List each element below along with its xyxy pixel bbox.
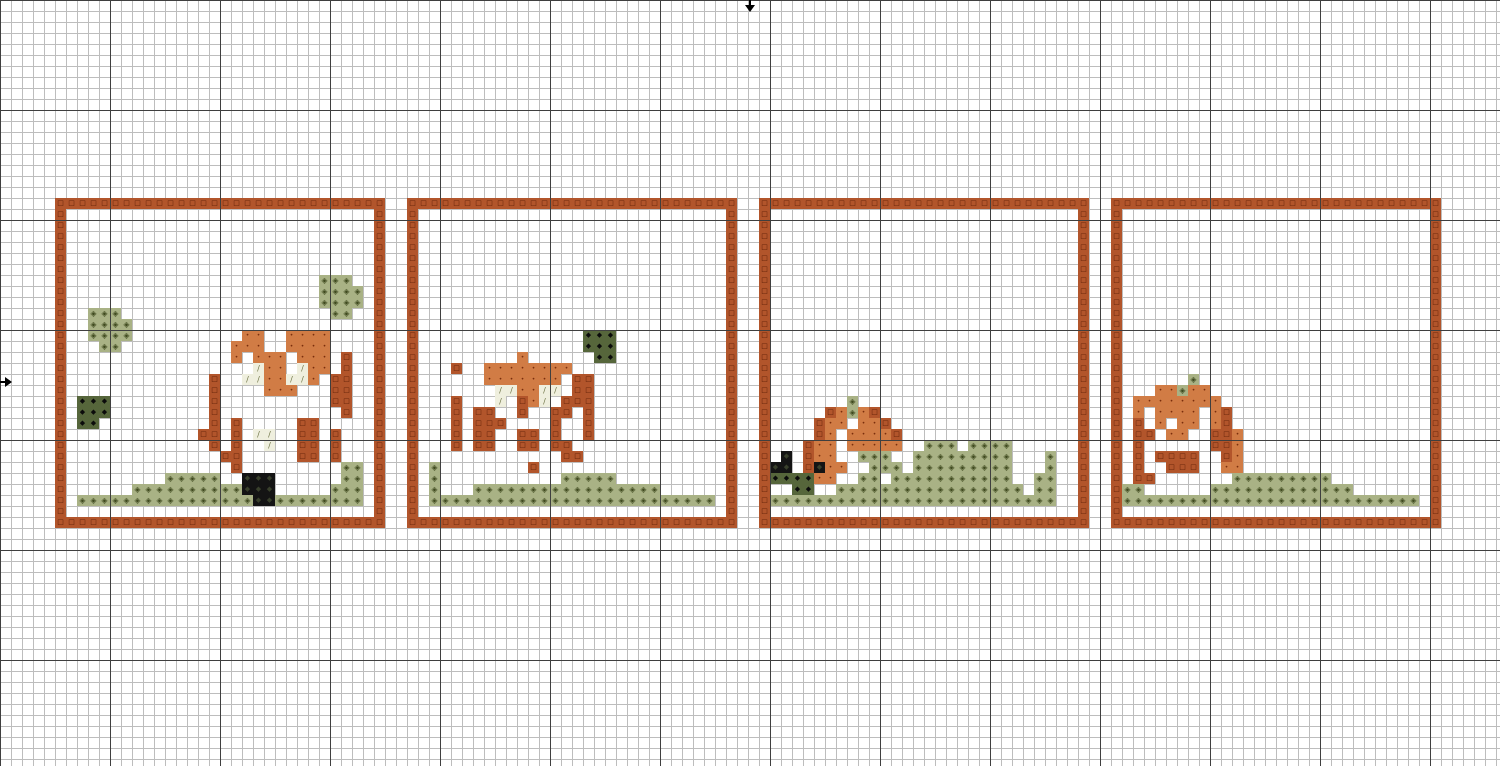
stitch-cell[interactable]: □ <box>374 440 385 451</box>
stitch-cell[interactable]: □ <box>1353 198 1364 209</box>
stitch-cell[interactable]: □ <box>1430 198 1441 209</box>
stitch-cell[interactable]: □ <box>1078 385 1089 396</box>
stitch-cell[interactable]: ◈ <box>1342 495 1353 506</box>
stitch-cell[interactable]: ◈ <box>429 495 440 506</box>
stitch-cell[interactable]: □ <box>484 198 495 209</box>
stitch-cell[interactable]: □ <box>759 429 770 440</box>
stitch-cell[interactable]: □ <box>726 264 737 275</box>
stitch-cell[interactable]: □ <box>1111 330 1122 341</box>
stitch-cell[interactable]: □ <box>330 198 341 209</box>
stitch-cell[interactable]: □ <box>1430 253 1441 264</box>
stitch-cell[interactable]: □ <box>473 440 484 451</box>
stitch-cell[interactable]: □ <box>1397 517 1408 528</box>
stitch-cell[interactable]: ◈ <box>330 275 341 286</box>
stitch-cell[interactable]: □ <box>308 418 319 429</box>
stitch-cell[interactable]: □ <box>55 462 66 473</box>
stitch-cell[interactable]: □ <box>88 517 99 528</box>
stitch-cell[interactable]: □ <box>220 517 231 528</box>
stitch-cell[interactable]: ◈ <box>979 484 990 495</box>
stitch-cell[interactable]: ◈ <box>88 319 99 330</box>
stitch-cell[interactable]: ◈ <box>517 495 528 506</box>
stitch-cell[interactable]: ◈ <box>858 451 869 462</box>
stitch-cell[interactable]: □ <box>759 396 770 407</box>
stitch-cell[interactable]: □ <box>1221 198 1232 209</box>
stitch-cell[interactable]: □ <box>1177 462 1188 473</box>
stitch-cell[interactable]: □ <box>341 198 352 209</box>
stitch-cell[interactable]: □ <box>308 517 319 528</box>
stitch-cell[interactable]: ◈ <box>1254 484 1265 495</box>
stitch-cell[interactable]: □ <box>979 198 990 209</box>
stitch-cell[interactable]: □ <box>1375 517 1386 528</box>
stitch-cell[interactable]: • <box>561 363 572 374</box>
stitch-cell[interactable]: ◆ <box>77 407 88 418</box>
stitch-cell[interactable]: □ <box>792 198 803 209</box>
stitch-cell[interactable]: □ <box>407 495 418 506</box>
stitch-cell[interactable]: ◈ <box>429 462 440 473</box>
stitch-cell[interactable]: ◈ <box>572 473 583 484</box>
stitch-cell[interactable]: □ <box>1298 517 1309 528</box>
stitch-cell[interactable]: • <box>539 374 550 385</box>
stitch-cell[interactable]: □ <box>759 264 770 275</box>
stitch-cell[interactable]: • <box>1166 396 1177 407</box>
stitch-cell[interactable]: • <box>517 374 528 385</box>
stitch-cell[interactable]: □ <box>1078 429 1089 440</box>
stitch-cell[interactable]: □ <box>330 396 341 407</box>
stitch-cell[interactable]: □ <box>1078 352 1089 363</box>
stitch-cell[interactable]: □ <box>781 517 792 528</box>
stitch-cell[interactable]: ◈ <box>924 462 935 473</box>
stitch-cell[interactable]: □ <box>1078 374 1089 385</box>
stitch-cell[interactable]: ◈ <box>330 484 341 495</box>
stitch-cell[interactable]: □ <box>77 198 88 209</box>
stitch-cell[interactable]: ◈ <box>990 462 1001 473</box>
stitch-cell[interactable]: □ <box>759 297 770 308</box>
stitch-cell[interactable]: □ <box>484 429 495 440</box>
stitch-cell[interactable]: □ <box>165 517 176 528</box>
stitch-cell[interactable]: □ <box>605 517 616 528</box>
stitch-cell[interactable]: ◈ <box>1177 495 1188 506</box>
stitch-cell[interactable]: □ <box>55 429 66 440</box>
stitch-cell[interactable]: □ <box>1111 352 1122 363</box>
stitch-cell[interactable]: ◈ <box>517 484 528 495</box>
stitch-cell[interactable]: ◈ <box>99 330 110 341</box>
stitch-cell[interactable]: □ <box>374 484 385 495</box>
stitch-cell[interactable]: ◈ <box>1144 495 1155 506</box>
stitch-cell[interactable]: ◈ <box>165 484 176 495</box>
stitch-cell[interactable]: □ <box>759 286 770 297</box>
stitch-cell[interactable]: ◈ <box>682 495 693 506</box>
stitch-cell[interactable]: ◈ <box>495 484 506 495</box>
stitch-cell[interactable]: □ <box>407 231 418 242</box>
stitch-cell[interactable]: □ <box>330 517 341 528</box>
stitch-cell[interactable]: □ <box>528 429 539 440</box>
stitch-cell[interactable]: □ <box>55 275 66 286</box>
stitch-cell[interactable]: □ <box>583 396 594 407</box>
stitch-cell[interactable]: □ <box>726 484 737 495</box>
stitch-cell[interactable]: □ <box>528 440 539 451</box>
stitch-cell[interactable]: • <box>297 330 308 341</box>
stitch-cell[interactable]: ◆ <box>253 484 264 495</box>
stitch-cell[interactable]: □ <box>1144 429 1155 440</box>
stitch-cell[interactable]: □ <box>759 231 770 242</box>
stitch-cell[interactable]: □ <box>550 418 561 429</box>
stitch-cell[interactable]: • <box>286 385 297 396</box>
stitch-cell[interactable]: ◈ <box>352 484 363 495</box>
stitch-cell[interactable]: □ <box>517 198 528 209</box>
stitch-cell[interactable]: ◈ <box>1199 495 1210 506</box>
stitch-cell[interactable]: □ <box>1430 484 1441 495</box>
stitch-cell[interactable]: • <box>242 330 253 341</box>
stitch-cell[interactable]: ◈ <box>869 462 880 473</box>
stitch-cell[interactable]: □ <box>407 297 418 308</box>
stitch-cell[interactable]: □ <box>55 517 66 528</box>
stitch-cell[interactable]: □ <box>374 220 385 231</box>
stitch-cell[interactable]: □ <box>583 429 594 440</box>
stitch-cell[interactable]: • <box>858 440 869 451</box>
stitch-cell[interactable]: ◈ <box>550 484 561 495</box>
stitch-cell[interactable]: □ <box>407 429 418 440</box>
stitch-cell[interactable]: • <box>550 363 561 374</box>
stitch-cell[interactable]: □ <box>902 517 913 528</box>
stitch-cell[interactable]: ◆ <box>99 407 110 418</box>
stitch-cell[interactable]: □ <box>1144 517 1155 528</box>
stitch-cell[interactable]: □ <box>968 198 979 209</box>
stitch-cell[interactable]: □ <box>451 429 462 440</box>
stitch-cell[interactable]: • <box>1188 418 1199 429</box>
stitch-cell[interactable]: □ <box>913 517 924 528</box>
stitch-cell[interactable]: □ <box>528 198 539 209</box>
stitch-cell[interactable]: ◈ <box>946 462 957 473</box>
stitch-cell[interactable]: ◆ <box>99 396 110 407</box>
stitch-cell[interactable]: • <box>297 352 308 363</box>
stitch-cell[interactable]: □ <box>407 462 418 473</box>
stitch-cell[interactable]: • <box>528 374 539 385</box>
stitch-cell[interactable]: • <box>1155 407 1166 418</box>
stitch-cell[interactable]: □ <box>308 440 319 451</box>
stitch-cell[interactable]: □ <box>1430 451 1441 462</box>
stitch-cell[interactable]: □ <box>1430 264 1441 275</box>
stitch-cell[interactable]: ◈ <box>1045 451 1056 462</box>
stitch-cell[interactable]: ◈ <box>1309 484 1320 495</box>
stitch-cell[interactable]: ◈ <box>1034 495 1045 506</box>
stitch-cell[interactable]: • <box>869 418 880 429</box>
stitch-cell[interactable]: □ <box>1111 517 1122 528</box>
stitch-cell[interactable]: □ <box>209 517 220 528</box>
stitch-cell[interactable]: ◈ <box>1298 473 1309 484</box>
stitch-cell[interactable]: □ <box>1243 198 1254 209</box>
stitch-cell[interactable]: □ <box>1078 341 1089 352</box>
stitch-cell[interactable]: ◈ <box>583 473 594 484</box>
stitch-cell[interactable]: □ <box>759 341 770 352</box>
stitch-cell[interactable]: □ <box>1111 341 1122 352</box>
stitch-cell[interactable]: □ <box>308 198 319 209</box>
stitch-cell[interactable]: □ <box>1078 253 1089 264</box>
stitch-cell[interactable]: □ <box>407 440 418 451</box>
stitch-cell[interactable]: ◈ <box>1364 495 1375 506</box>
stitch-cell[interactable]: ◈ <box>330 286 341 297</box>
stitch-cell[interactable]: ◈ <box>154 484 165 495</box>
stitch-cell[interactable]: ◈ <box>121 319 132 330</box>
stitch-cell[interactable]: □ <box>55 396 66 407</box>
stitch-cell[interactable]: □ <box>1111 451 1122 462</box>
stitch-cell[interactable]: □ <box>374 517 385 528</box>
stitch-cell[interactable]: □ <box>1155 198 1166 209</box>
stitch-cell[interactable]: ◈ <box>594 495 605 506</box>
stitch-cell[interactable]: □ <box>1133 473 1144 484</box>
stitch-cell[interactable]: □ <box>1177 198 1188 209</box>
stitch-cell[interactable]: ◈ <box>627 495 638 506</box>
stitch-cell[interactable]: ◈ <box>1397 495 1408 506</box>
stitch-cell[interactable]: ◈ <box>913 462 924 473</box>
stitch-cell[interactable]: ◈ <box>1166 495 1177 506</box>
stitch-cell[interactable]: □ <box>1309 517 1320 528</box>
stitch-cell[interactable]: • <box>825 429 836 440</box>
stitch-cell[interactable]: □ <box>407 253 418 264</box>
stitch-cell[interactable]: □ <box>1133 440 1144 451</box>
stitch-cell[interactable]: □ <box>297 429 308 440</box>
stitch-cell[interactable]: □ <box>154 198 165 209</box>
stitch-cell[interactable]: □ <box>1111 253 1122 264</box>
stitch-cell[interactable]: □ <box>88 198 99 209</box>
stitch-cell[interactable]: □ <box>374 198 385 209</box>
stitch-cell[interactable]: □ <box>957 198 968 209</box>
stitch-cell[interactable]: □ <box>1221 440 1232 451</box>
stitch-cell[interactable]: ◈ <box>825 495 836 506</box>
stitch-cell[interactable]: ◈ <box>528 484 539 495</box>
stitch-cell[interactable]: □ <box>1078 495 1089 506</box>
stitch-cell[interactable]: • <box>297 341 308 352</box>
stitch-cell[interactable]: ◈ <box>176 495 187 506</box>
stitch-cell[interactable]: □ <box>55 506 66 517</box>
stitch-cell[interactable]: ◈ <box>847 396 858 407</box>
stitch-cell[interactable]: ◈ <box>891 473 902 484</box>
stitch-cell[interactable]: □ <box>1111 440 1122 451</box>
stitch-cell[interactable]: ◈ <box>330 495 341 506</box>
stitch-cell[interactable]: ◆ <box>583 330 594 341</box>
stitch-cell[interactable]: □ <box>759 275 770 286</box>
stitch-cell[interactable]: □ <box>55 484 66 495</box>
stitch-cell[interactable]: □ <box>352 198 363 209</box>
stitch-cell[interactable]: • <box>1166 429 1177 440</box>
stitch-cell[interactable]: ◈ <box>352 297 363 308</box>
stitch-cell[interactable]: ◈ <box>561 495 572 506</box>
stitch-cell[interactable]: □ <box>363 198 374 209</box>
stitch-cell[interactable]: □ <box>143 517 154 528</box>
stitch-cell[interactable]: □ <box>374 462 385 473</box>
stitch-cell[interactable]: ◈ <box>913 495 924 506</box>
stitch-cell[interactable]: ◈ <box>880 495 891 506</box>
stitch-cell[interactable]: ◈ <box>1188 374 1199 385</box>
stitch-cell[interactable]: • <box>858 429 869 440</box>
stitch-cell[interactable]: □ <box>374 506 385 517</box>
stitch-cell[interactable]: □ <box>297 418 308 429</box>
stitch-cell[interactable]: □ <box>66 198 77 209</box>
stitch-cell[interactable]: □ <box>55 363 66 374</box>
stitch-cell[interactable]: ◈ <box>429 473 440 484</box>
stitch-cell[interactable]: ◈ <box>506 495 517 506</box>
stitch-cell[interactable]: □ <box>550 198 561 209</box>
stitch-cell[interactable]: □ <box>55 209 66 220</box>
stitch-cell[interactable]: • <box>1133 407 1144 418</box>
stitch-cell[interactable]: / <box>264 429 275 440</box>
stitch-cell[interactable]: □ <box>1056 198 1067 209</box>
stitch-cell[interactable]: □ <box>1430 330 1441 341</box>
stitch-cell[interactable]: • <box>880 429 891 440</box>
stitch-cell[interactable]: ◈ <box>319 297 330 308</box>
stitch-cell[interactable]: ◈ <box>451 495 462 506</box>
stitch-cell[interactable]: □ <box>407 220 418 231</box>
stitch-cell[interactable]: ◈ <box>110 341 121 352</box>
stitch-cell[interactable]: □ <box>726 330 737 341</box>
stitch-cell[interactable]: □ <box>55 220 66 231</box>
stitch-cell[interactable]: □ <box>55 385 66 396</box>
stitch-cell[interactable]: □ <box>1023 517 1034 528</box>
stitch-cell[interactable]: □ <box>484 407 495 418</box>
stitch-cell[interactable]: ◈ <box>847 484 858 495</box>
stitch-cell[interactable]: • <box>869 429 880 440</box>
stitch-cell[interactable]: □ <box>913 198 924 209</box>
stitch-cell[interactable]: • <box>836 407 847 418</box>
stitch-cell[interactable]: ◈ <box>594 473 605 484</box>
stitch-cell[interactable]: • <box>858 407 869 418</box>
stitch-cell[interactable]: □ <box>759 517 770 528</box>
stitch-cell[interactable]: • <box>517 363 528 374</box>
stitch-cell[interactable]: □ <box>726 253 737 264</box>
stitch-cell[interactable]: □ <box>407 363 418 374</box>
stitch-cell[interactable]: □ <box>1320 517 1331 528</box>
stitch-cell[interactable]: □ <box>1320 198 1331 209</box>
stitch-cell[interactable]: □ <box>473 198 484 209</box>
stitch-cell[interactable]: □ <box>1111 286 1122 297</box>
stitch-cell[interactable]: □ <box>407 198 418 209</box>
stitch-cell[interactable]: • <box>825 462 836 473</box>
stitch-cell[interactable]: □ <box>726 352 737 363</box>
stitch-cell[interactable]: ◈ <box>1177 385 1188 396</box>
stitch-cell[interactable]: ◈ <box>198 484 209 495</box>
stitch-cell[interactable]: □ <box>55 374 66 385</box>
stitch-cell[interactable]: □ <box>1111 319 1122 330</box>
stitch-cell[interactable]: ◈ <box>979 451 990 462</box>
stitch-cell[interactable]: □ <box>704 198 715 209</box>
stitch-cell[interactable]: □ <box>759 418 770 429</box>
stitch-cell[interactable]: / <box>253 429 264 440</box>
stitch-cell[interactable]: ◈ <box>1133 484 1144 495</box>
stitch-cell[interactable]: □ <box>1364 517 1375 528</box>
stitch-cell[interactable]: ◈ <box>968 495 979 506</box>
stitch-cell[interactable]: ◈ <box>539 484 550 495</box>
stitch-cell[interactable]: • <box>825 440 836 451</box>
stitch-cell[interactable]: □ <box>374 330 385 341</box>
stitch-cell[interactable]: □ <box>407 506 418 517</box>
stitch-cell[interactable]: ◈ <box>99 341 110 352</box>
stitch-cell[interactable]: ◈ <box>1375 495 1386 506</box>
stitch-cell[interactable]: □ <box>858 517 869 528</box>
stitch-cell[interactable]: ◈ <box>473 495 484 506</box>
stitch-cell[interactable]: □ <box>253 517 264 528</box>
stitch-cell[interactable]: ◈ <box>187 484 198 495</box>
stitch-cell[interactable]: ◈ <box>1276 495 1287 506</box>
stitch-cell[interactable]: □ <box>363 517 374 528</box>
stitch-cell[interactable]: □ <box>242 517 253 528</box>
stitch-cell[interactable]: ◈ <box>341 495 352 506</box>
stitch-cell[interactable]: □ <box>803 198 814 209</box>
stitch-cell[interactable]: □ <box>891 517 902 528</box>
stitch-cell[interactable]: □ <box>1078 330 1089 341</box>
stitch-cell[interactable]: □ <box>231 517 242 528</box>
stitch-cell[interactable]: □ <box>451 517 462 528</box>
stitch-cell[interactable]: □ <box>374 363 385 374</box>
stitch-cell[interactable]: ◈ <box>869 451 880 462</box>
stitch-cell[interactable]: □ <box>308 451 319 462</box>
stitch-cell[interactable]: ◈ <box>132 495 143 506</box>
stitch-cell[interactable]: □ <box>506 198 517 209</box>
stitch-cell[interactable]: □ <box>726 517 737 528</box>
stitch-cell[interactable]: □ <box>649 198 660 209</box>
stitch-cell[interactable]: ◆ <box>792 484 803 495</box>
stitch-cell[interactable]: □ <box>1133 198 1144 209</box>
stitch-cell[interactable]: □ <box>418 517 429 528</box>
stitch-cell[interactable]: • <box>231 352 242 363</box>
stitch-cell[interactable]: ◈ <box>341 484 352 495</box>
stitch-cell[interactable]: □ <box>715 517 726 528</box>
stitch-cell[interactable]: □ <box>1408 517 1419 528</box>
stitch-cell[interactable]: □ <box>187 517 198 528</box>
stitch-cell[interactable]: ◈ <box>968 451 979 462</box>
stitch-cell[interactable]: ◈ <box>110 308 121 319</box>
stitch-cell[interactable]: □ <box>759 462 770 473</box>
stitch-cell[interactable]: □ <box>407 352 418 363</box>
stitch-cell[interactable]: ◈ <box>528 495 539 506</box>
stitch-cell[interactable]: ◆ <box>264 495 275 506</box>
stitch-cell[interactable]: □ <box>1232 198 1243 209</box>
stitch-cell[interactable]: □ <box>957 517 968 528</box>
stitch-cell[interactable]: □ <box>1111 198 1122 209</box>
stitch-cell[interactable]: □ <box>979 517 990 528</box>
stitch-cell[interactable]: □ <box>231 418 242 429</box>
stitch-cell[interactable]: ◈ <box>561 473 572 484</box>
stitch-cell[interactable]: □ <box>319 198 330 209</box>
stitch-cell[interactable]: / <box>506 385 517 396</box>
stitch-cell[interactable]: ◆ <box>583 341 594 352</box>
stitch-cell[interactable]: • <box>825 473 836 484</box>
stitch-cell[interactable]: □ <box>462 198 473 209</box>
stitch-cell[interactable]: □ <box>473 418 484 429</box>
stitch-cell[interactable]: □ <box>616 517 627 528</box>
stitch-cell[interactable]: • <box>1199 385 1210 396</box>
stitch-cell[interactable]: ◈ <box>869 495 880 506</box>
stitch-cell[interactable]: □ <box>407 286 418 297</box>
stitch-cell[interactable]: ◈ <box>649 495 660 506</box>
stitch-cell[interactable]: □ <box>1122 198 1133 209</box>
stitch-cell[interactable]: □ <box>726 462 737 473</box>
stitch-cell[interactable]: □ <box>836 517 847 528</box>
stitch-cell[interactable]: □ <box>319 517 330 528</box>
stitch-cell[interactable]: ◈ <box>242 495 253 506</box>
stitch-cell[interactable]: / <box>297 363 308 374</box>
stitch-cell[interactable]: • <box>1232 462 1243 473</box>
stitch-cell[interactable]: ◈ <box>1133 495 1144 506</box>
stitch-cell[interactable]: □ <box>726 220 737 231</box>
stitch-cell[interactable]: ◆ <box>77 396 88 407</box>
stitch-cell[interactable]: □ <box>429 198 440 209</box>
stitch-cell[interactable]: □ <box>55 407 66 418</box>
stitch-cell[interactable]: □ <box>1309 198 1320 209</box>
stitch-cell[interactable]: □ <box>726 297 737 308</box>
stitch-cell[interactable]: □ <box>1078 396 1089 407</box>
stitch-cell[interactable]: □ <box>374 286 385 297</box>
stitch-cell[interactable]: • <box>1177 429 1188 440</box>
stitch-cell[interactable]: □ <box>374 297 385 308</box>
